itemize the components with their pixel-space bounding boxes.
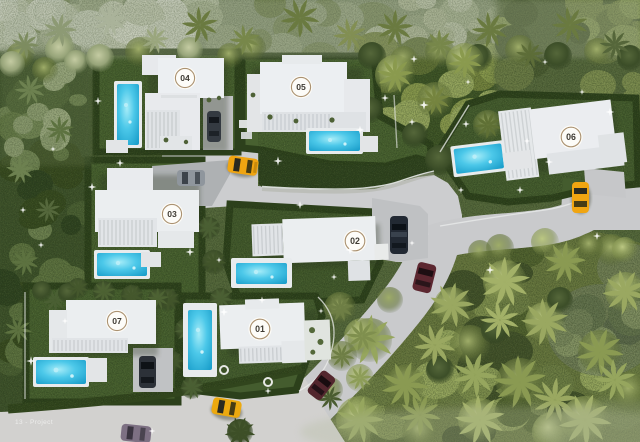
- svg-text:06: 06: [566, 132, 576, 142]
- svg-text:04: 04: [180, 73, 190, 83]
- svg-text:13 - Project: 13 - Project: [15, 419, 53, 426]
- svg-text:07: 07: [112, 316, 122, 326]
- svg-text:01: 01: [255, 324, 265, 334]
- svg-text:05: 05: [296, 82, 306, 92]
- svg-text:02: 02: [350, 236, 360, 246]
- svg-text:03: 03: [167, 209, 177, 219]
